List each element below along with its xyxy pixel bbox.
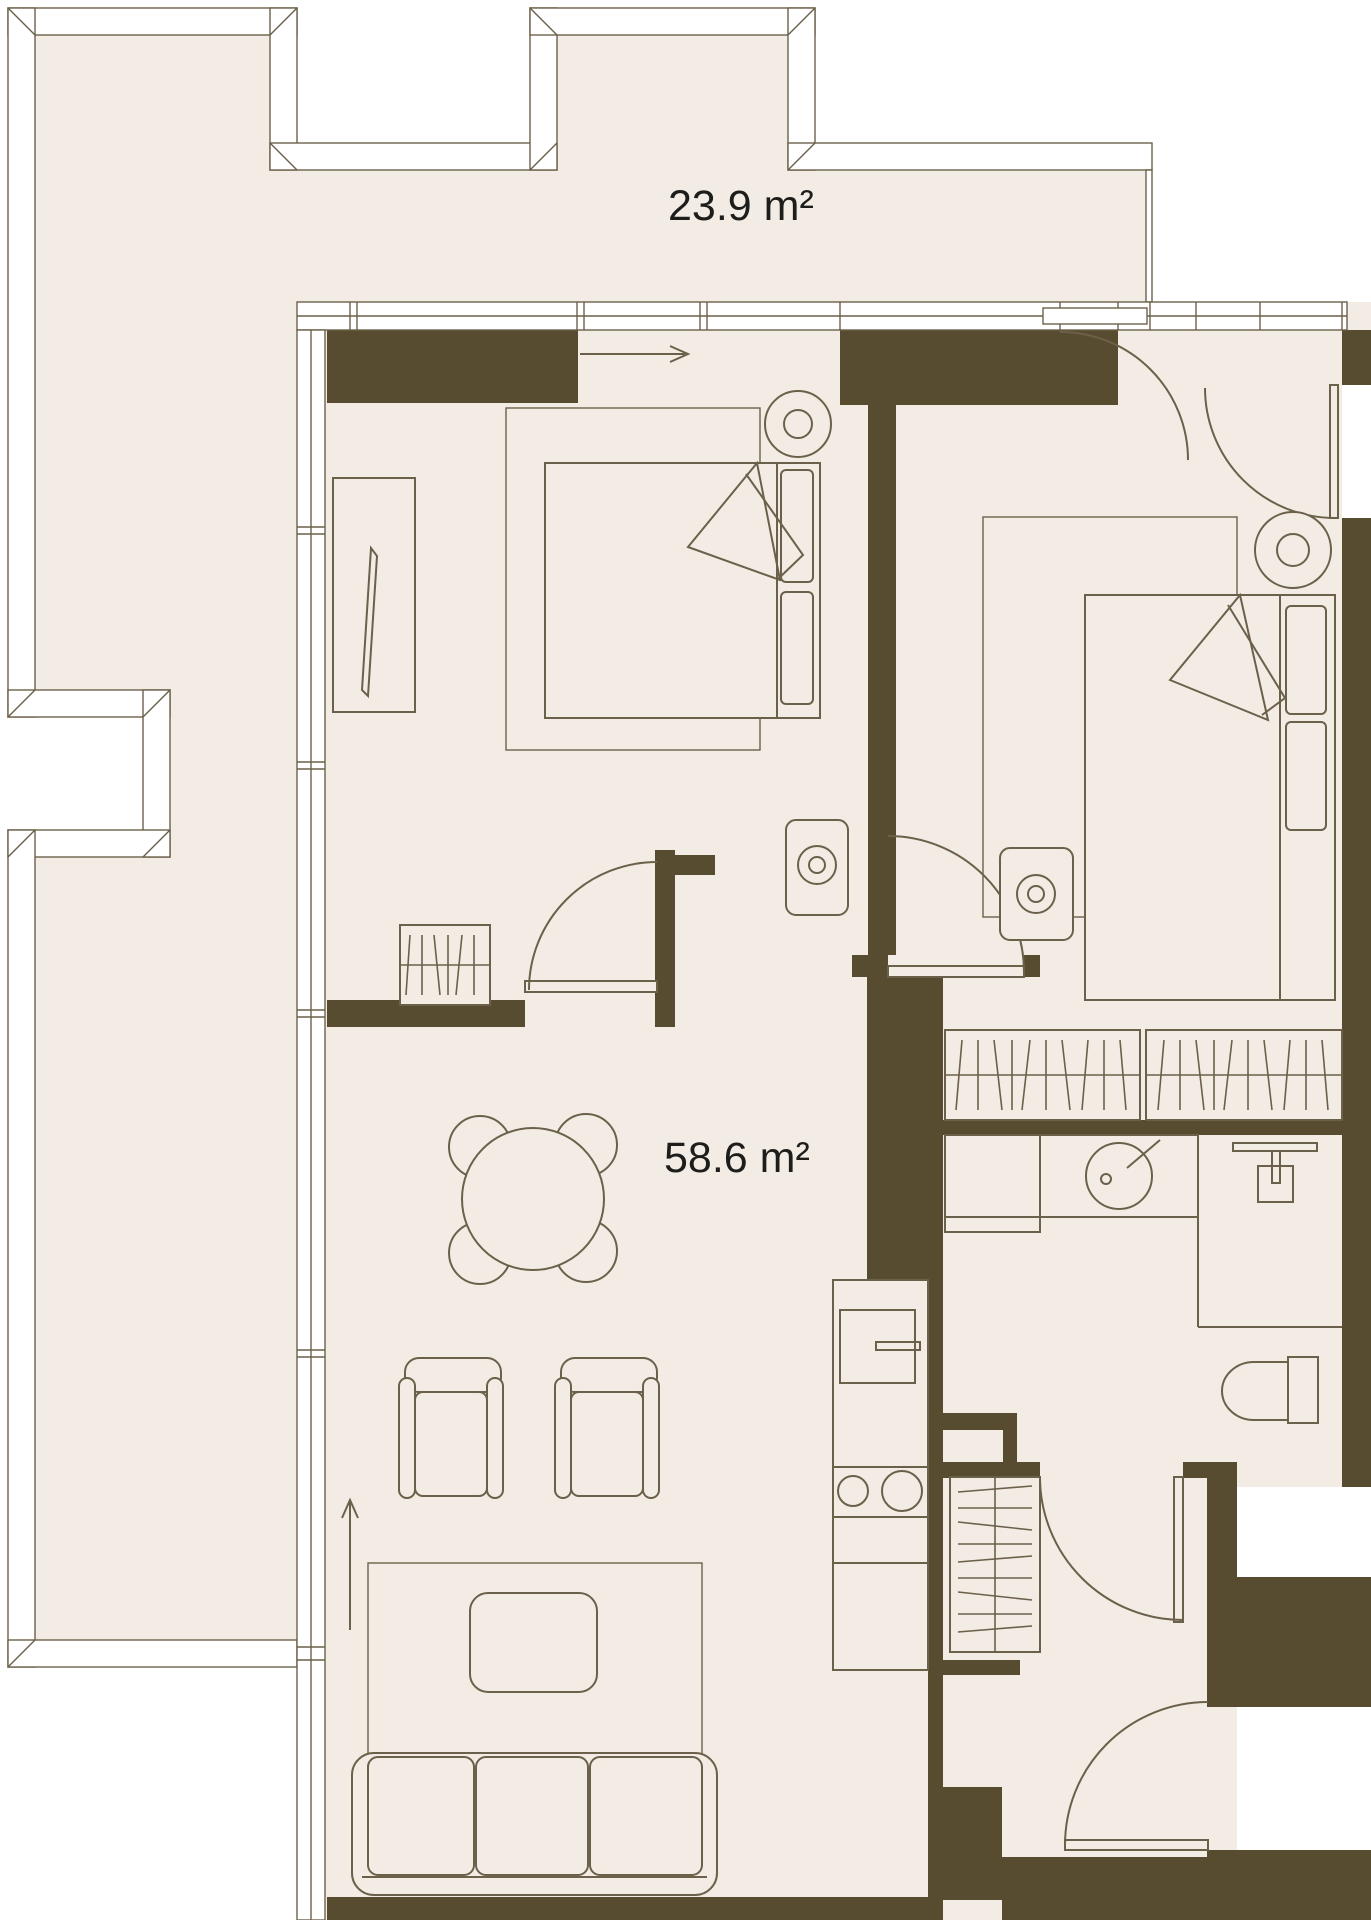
wardrobe-hangers [1146, 1030, 1342, 1120]
wardrobe-hangers [400, 925, 490, 1005]
building-opening-lower [1237, 1707, 1371, 1850]
floor-plan: 23.9 m² [0, 0, 1371, 1920]
sofa-cushion [590, 1757, 702, 1875]
nightstand [786, 820, 848, 915]
interior-area-label: 58.6 m² [664, 1134, 810, 1182]
building-opening-upper [1237, 1487, 1371, 1577]
kitchen [833, 1280, 928, 1670]
coffee-table [470, 1593, 597, 1692]
right-wall-door-gap [1342, 385, 1371, 518]
nightstand [1000, 848, 1073, 940]
double-bed [545, 463, 820, 718]
dining-set [449, 1114, 617, 1284]
armchair [555, 1358, 659, 1498]
terrace-area-label: 23.9 m² [668, 182, 814, 230]
balcony-door-sill [1043, 308, 1147, 324]
floor-plan-page: 23.9 m² [0, 0, 1371, 1920]
sofa-cushion [368, 1757, 474, 1875]
bedside-lamp [1255, 512, 1331, 588]
pillow [781, 592, 813, 704]
entry-hall [950, 1477, 1040, 1652]
washing-machine [945, 1135, 1040, 1217]
wardrobe-hangers [950, 1477, 1040, 1652]
pillow [1286, 722, 1326, 830]
wardrobe-hangers [945, 1030, 1140, 1120]
double-bed [1085, 595, 1335, 1000]
pillow [781, 470, 813, 582]
armchair [399, 1358, 503, 1498]
sofa [352, 1753, 717, 1895]
pillow [1286, 606, 1326, 714]
dining-table [462, 1128, 604, 1270]
toilet [1222, 1357, 1318, 1423]
bedside-lamp [765, 391, 831, 457]
sofa-cushion [476, 1757, 588, 1875]
